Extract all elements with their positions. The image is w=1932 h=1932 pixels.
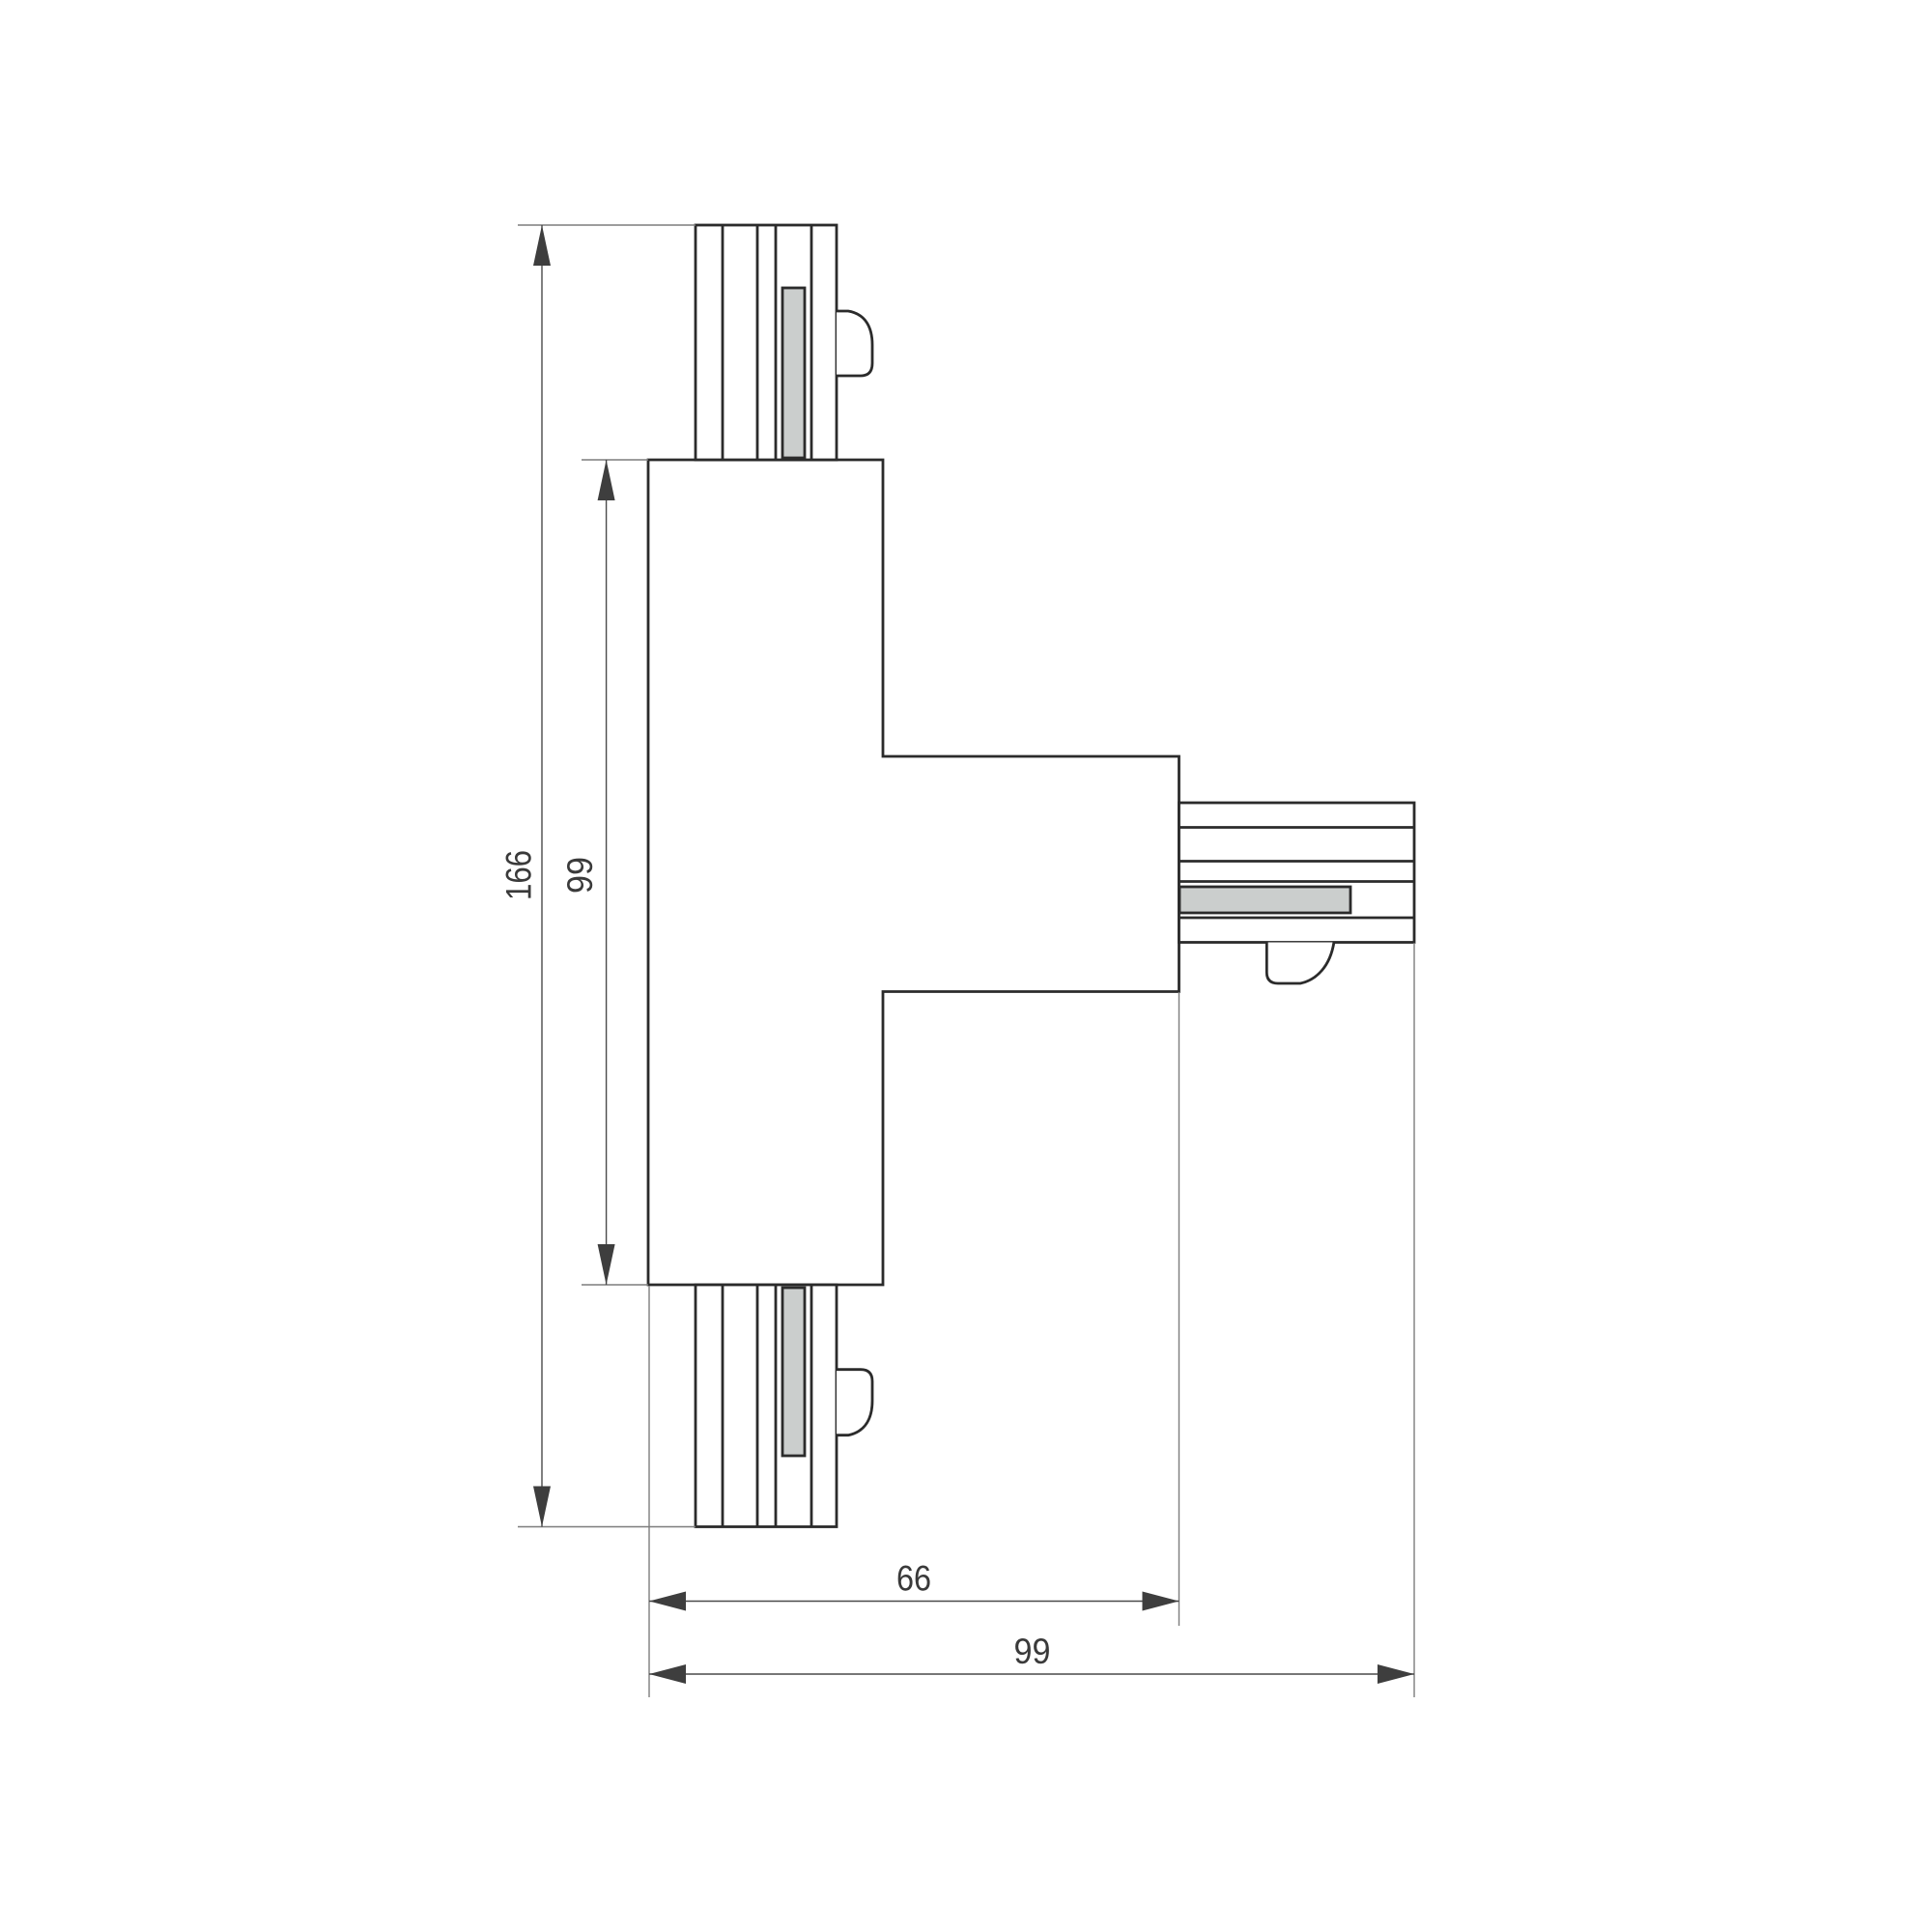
svg-text:66: 66 [896,1559,931,1599]
svg-text:166: 166 [499,850,539,900]
svg-text:99: 99 [1014,1632,1051,1671]
svg-text:99: 99 [560,857,600,894]
